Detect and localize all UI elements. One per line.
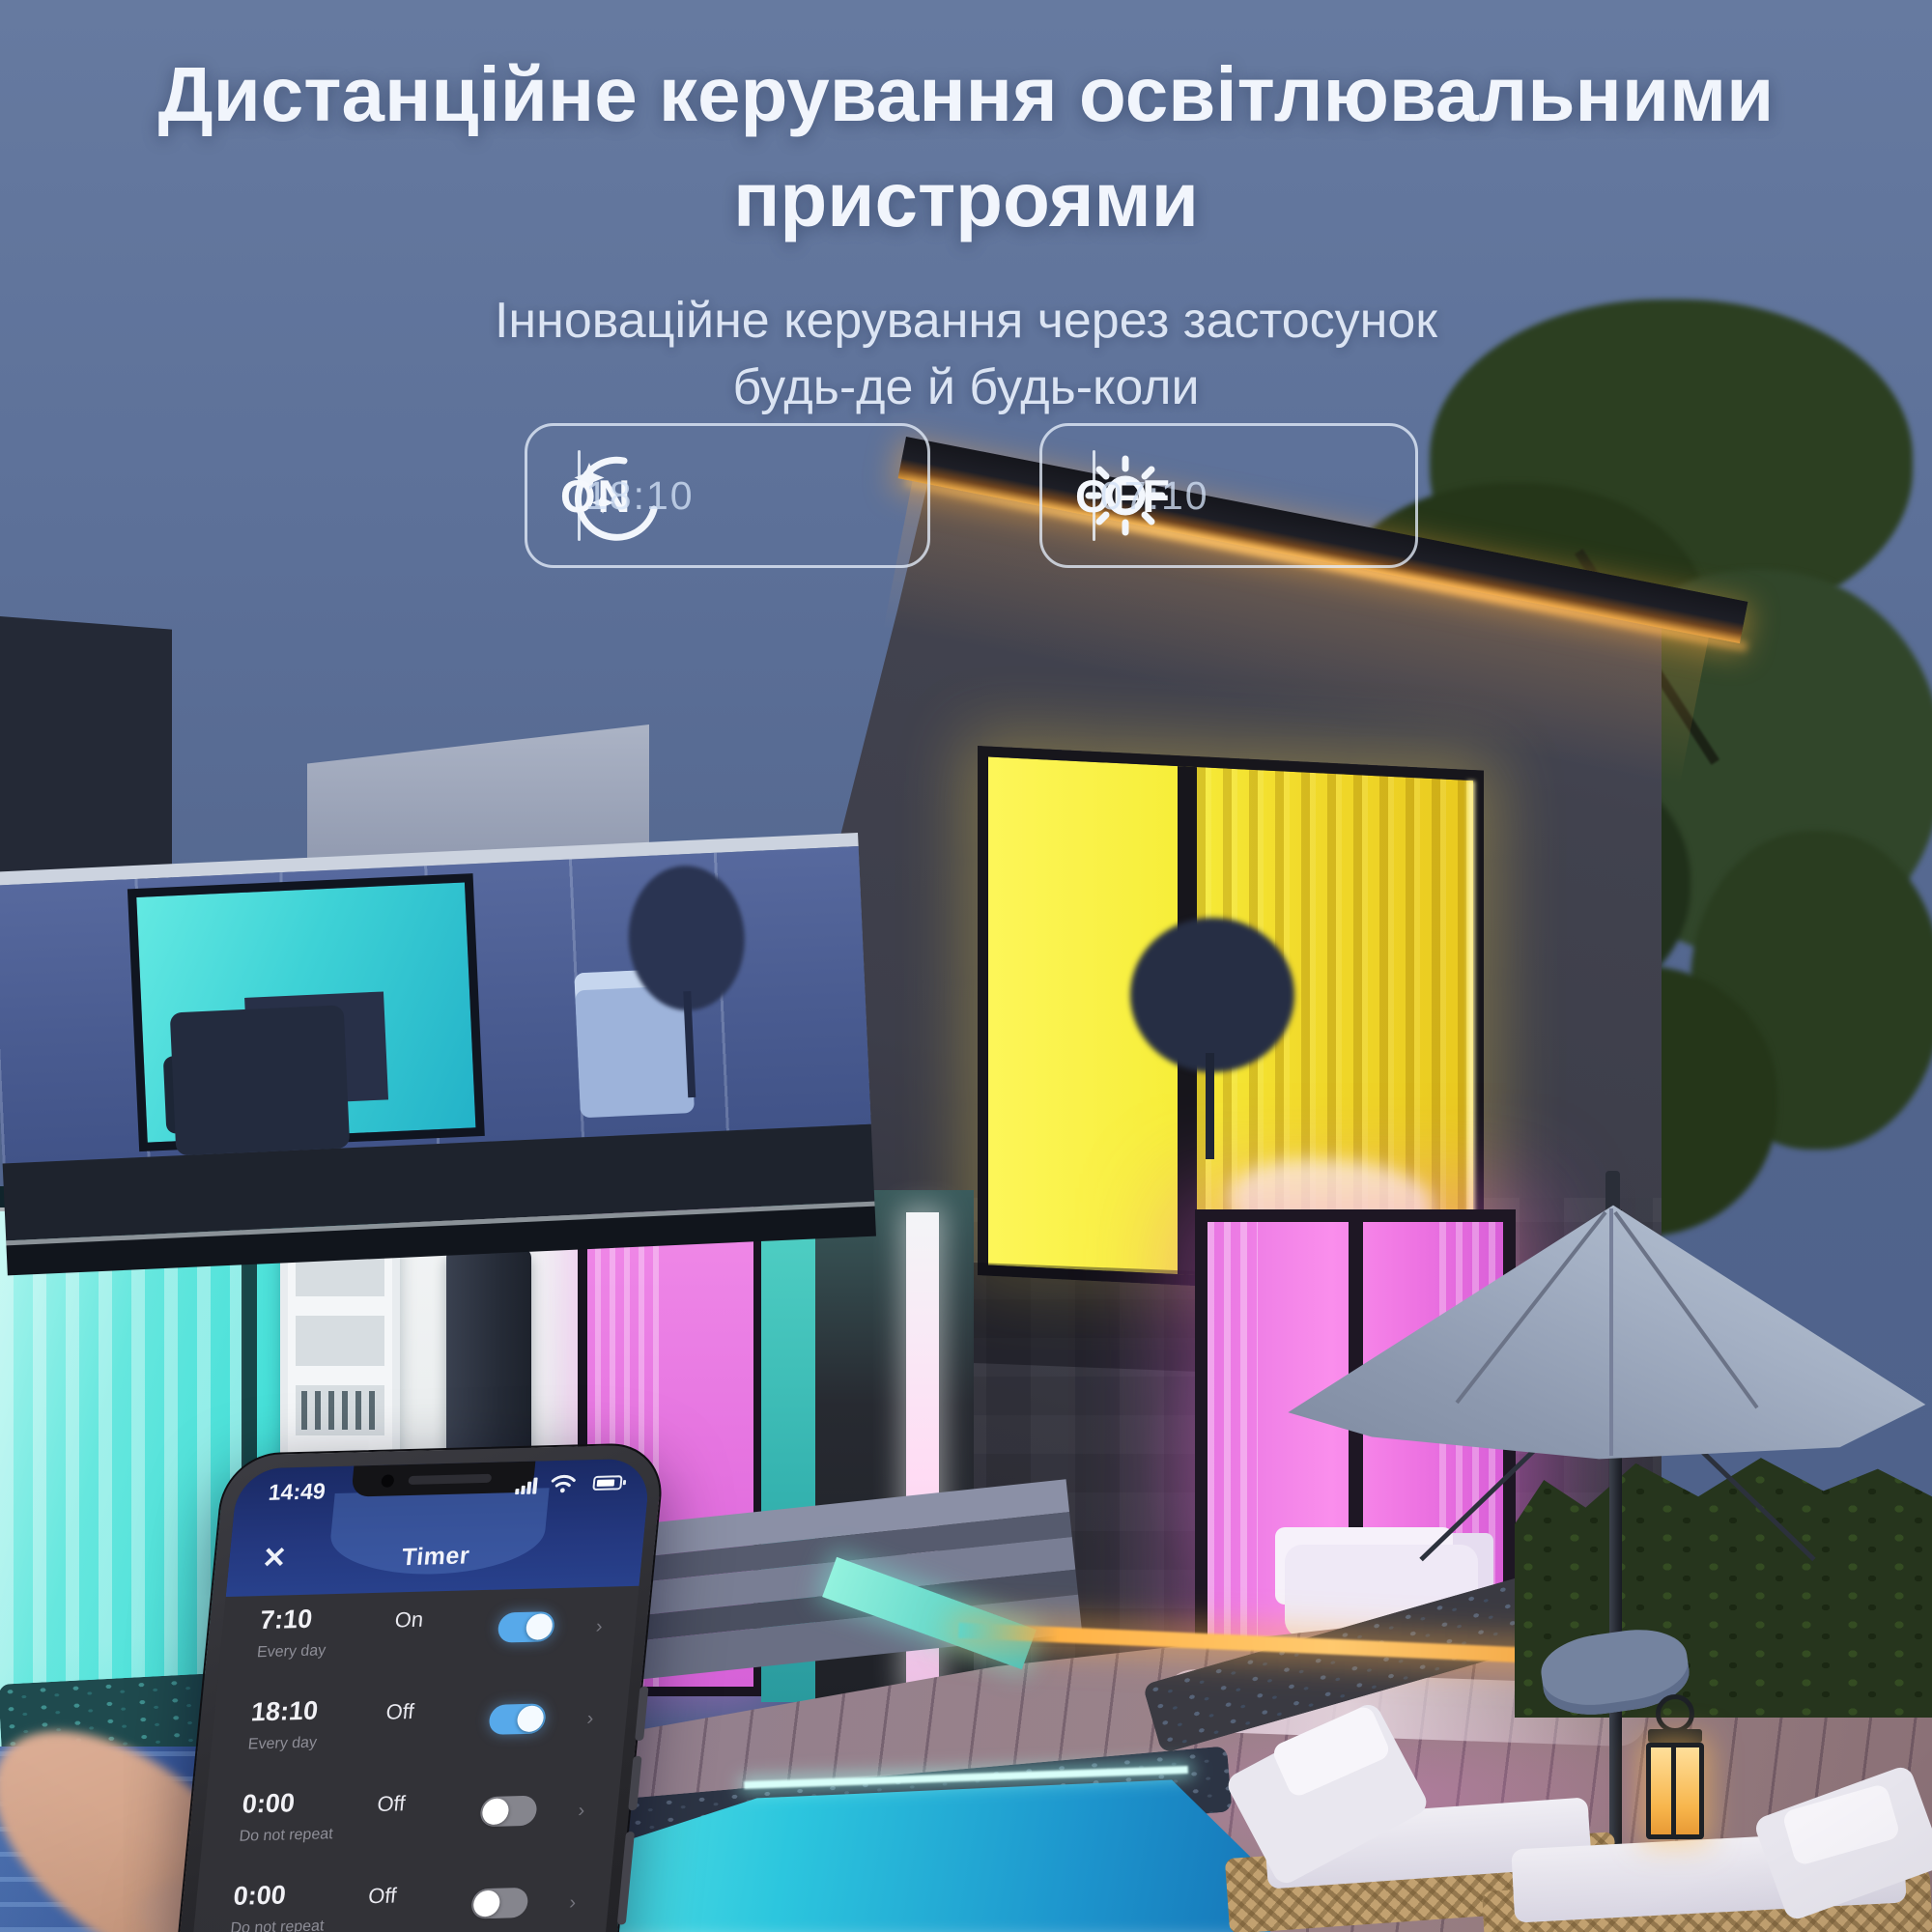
terrace-tree-silhouette xyxy=(615,863,761,1110)
lantern-handle xyxy=(1656,1694,1694,1733)
timer-action: Off xyxy=(376,1791,406,1817)
smartphone: 14:49 ✕ xyxy=(142,1442,667,1932)
timer-time: 18:10 xyxy=(250,1696,320,1728)
schedule-badge-off: OFF 07:10 xyxy=(1039,423,1418,568)
timer-action: On xyxy=(394,1607,425,1634)
wifi-icon xyxy=(550,1473,577,1493)
chevron-right-icon: › xyxy=(577,1800,585,1822)
tree-stem xyxy=(1206,1053,1214,1159)
timer-time: 7:10 xyxy=(259,1605,314,1636)
chevron-right-icon: › xyxy=(586,1708,595,1730)
timer-time: 0:00 xyxy=(241,1788,296,1820)
lantern-frame-bar xyxy=(1671,1745,1676,1837)
phone-screen: 14:49 ✕ xyxy=(158,1458,651,1932)
timer-toggle[interactable] xyxy=(497,1611,555,1643)
status-bar-clock: 14:49 xyxy=(268,1478,327,1506)
subtitle-line-2: будь-де й будь-коли xyxy=(0,355,1932,421)
title-line-1: Дистанційне керування освітлювальними xyxy=(0,43,1932,148)
timer-action: Off xyxy=(367,1883,397,1909)
speaker-slot xyxy=(408,1474,492,1485)
door-curtain xyxy=(1207,1222,1258,1678)
timer-row[interactable]: 18:10 Every day Off › xyxy=(208,1682,630,1784)
timer-toggle[interactable] xyxy=(488,1703,547,1735)
timer-row[interactable]: 7:10 Every day On › xyxy=(216,1590,639,1692)
patio-lantern xyxy=(1638,1694,1712,1861)
schedule-badge-on: ON 18:10 xyxy=(525,423,930,568)
lantern-cap xyxy=(1648,1729,1702,1743)
timer-repeat: Every day xyxy=(247,1735,318,1754)
umbrella-rib xyxy=(1609,1208,1613,1456)
battery-icon xyxy=(592,1475,622,1491)
camera-icon xyxy=(381,1474,394,1487)
timer-time: 0:00 xyxy=(232,1880,287,1912)
timer-toggle[interactable] xyxy=(479,1796,538,1828)
terrace-chair-dark xyxy=(170,1005,351,1155)
badge-time: 07:10 xyxy=(1100,473,1209,519)
status-bar-icons xyxy=(515,1472,623,1496)
badge-time: 18:10 xyxy=(585,473,695,519)
subtitle-line-1: Інноваційне керування через застосунок xyxy=(0,288,1932,355)
title-line-2: пристроями xyxy=(0,148,1932,253)
glass-railing xyxy=(0,846,871,1164)
signal-icon xyxy=(515,1476,542,1494)
timer-action: Off xyxy=(384,1699,414,1725)
house-left-terrace xyxy=(0,833,882,1412)
timer-repeat: Every day xyxy=(256,1642,327,1662)
timer-repeat: Do not repeat xyxy=(230,1918,326,1932)
timer-repeat: Do not repeat xyxy=(239,1826,334,1846)
promo-image: Дистанційне керування освітлювальними пр… xyxy=(0,0,1932,1932)
timer-row[interactable]: 0:00 Do not repeat Off › xyxy=(190,1866,612,1932)
tree-foliage xyxy=(1130,918,1294,1072)
terrace-tree-silhouette xyxy=(1111,918,1304,1159)
page-subtitle: Інноваційне керування через застосунок б… xyxy=(0,288,1932,420)
roof-box xyxy=(0,616,172,879)
page-title: Дистанційне керування освітлювальними пр… xyxy=(0,43,1932,253)
timer-toggle[interactable] xyxy=(470,1888,529,1919)
chevron-right-icon: › xyxy=(568,1892,577,1915)
timer-row[interactable]: 0:00 Do not repeat Off › xyxy=(199,1774,621,1876)
chevron-right-icon: › xyxy=(595,1616,604,1638)
phone-notch xyxy=(351,1462,535,1497)
